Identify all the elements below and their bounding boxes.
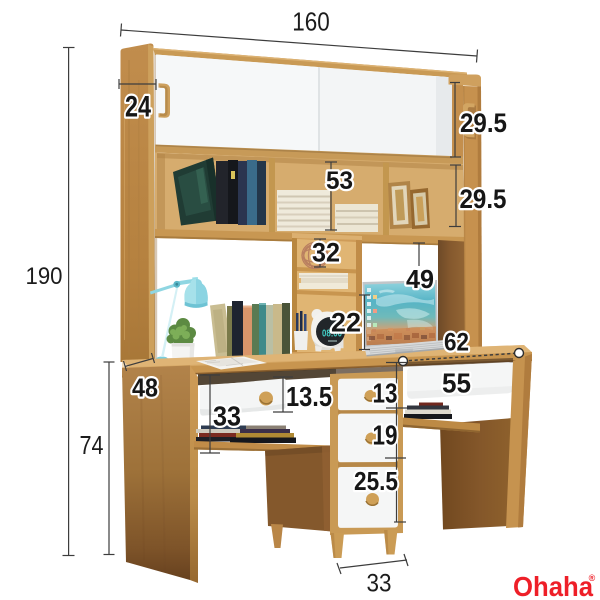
- svg-text:13.5: 13.5: [286, 381, 332, 412]
- svg-text:160: 160: [292, 7, 330, 37]
- svg-text:49: 49: [406, 264, 434, 294]
- svg-text:29.5: 29.5: [460, 108, 507, 138]
- svg-text:74: 74: [80, 430, 104, 460]
- svg-text:33: 33: [213, 401, 241, 432]
- svg-text:®: ®: [589, 573, 596, 583]
- svg-text:48: 48: [132, 373, 158, 403]
- svg-text:19: 19: [373, 420, 398, 451]
- svg-text:32: 32: [312, 238, 340, 268]
- svg-text:25.5: 25.5: [354, 466, 398, 496]
- svg-text:53: 53: [326, 167, 353, 195]
- svg-text:Ohaha: Ohaha: [513, 571, 593, 600]
- svg-text:62: 62: [444, 329, 469, 357]
- svg-text:55: 55: [442, 368, 471, 399]
- svg-text:29.5: 29.5: [460, 184, 507, 214]
- svg-text:22: 22: [331, 308, 361, 338]
- svg-text:13: 13: [373, 378, 398, 409]
- svg-text:33: 33: [367, 570, 392, 598]
- svg-text:24: 24: [125, 90, 151, 123]
- svg-text:190: 190: [26, 263, 63, 290]
